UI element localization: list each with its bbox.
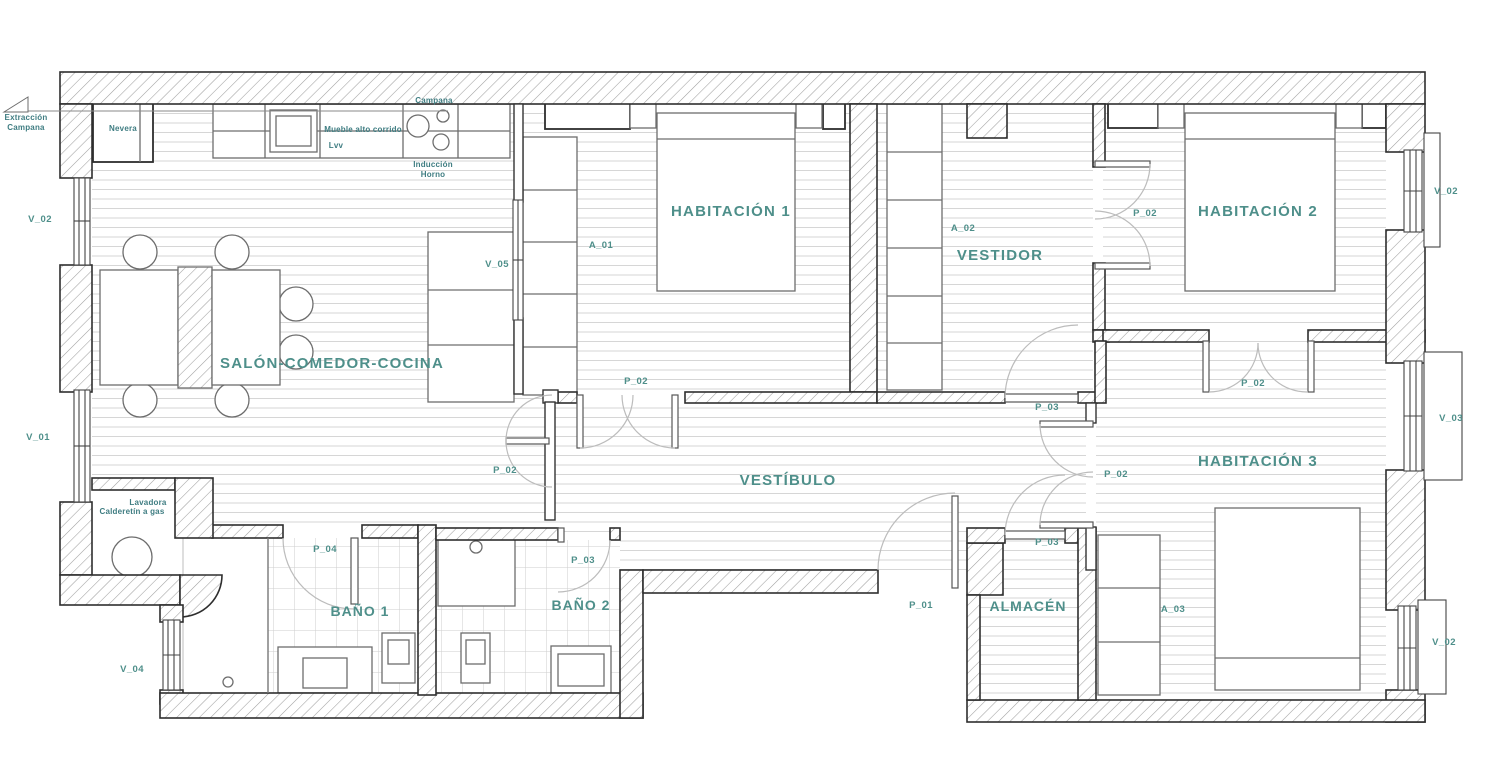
room-label-vestidor: VESTIDOR bbox=[957, 247, 1043, 264]
kitchen-label-horno: Horno bbox=[421, 170, 446, 179]
nightstand bbox=[796, 102, 822, 128]
kitchen-label-campana: Campana bbox=[415, 96, 453, 105]
vanity-sink bbox=[303, 658, 347, 688]
kitchen-label-nevera: Nevera bbox=[109, 124, 137, 133]
toilet-tank bbox=[466, 640, 485, 664]
floor-drain bbox=[223, 677, 233, 687]
room-label-hab1: HABITACIÓN 1 bbox=[671, 202, 791, 220]
kitchen-label-induccion: Inducción bbox=[413, 160, 453, 169]
room-label-hab3: HABITACIÓN 3 bbox=[1198, 452, 1318, 470]
window-v01-left bbox=[74, 390, 90, 502]
nightstand bbox=[630, 102, 656, 128]
door-label-p03-bano2: P_03 bbox=[571, 555, 595, 566]
window-v02-left bbox=[74, 178, 90, 265]
floor-plan-page: SALÓN-COMEDOR-COCINA HABITACIÓN 1 VESTID… bbox=[0, 0, 1500, 762]
chair bbox=[215, 235, 249, 269]
wall-shaft bbox=[967, 104, 1007, 138]
door-label-p02-hab1: P_02 bbox=[624, 376, 648, 387]
door-label-p03-vestidor: P_03 bbox=[1035, 402, 1059, 413]
window-label-v02-left: V_02 bbox=[28, 214, 52, 225]
kitchen-sink-basin bbox=[276, 116, 311, 146]
room-label-bano1: BAÑO 1 bbox=[331, 602, 390, 619]
nightstand bbox=[1336, 102, 1362, 128]
kitchen-label-extraccion-line2: Campana bbox=[7, 123, 45, 132]
door-label-p04: P_04 bbox=[313, 544, 337, 555]
glazed-partition-salon bbox=[545, 402, 555, 520]
bed-hab3 bbox=[1215, 508, 1360, 690]
glazed-partition-corridor bbox=[1086, 403, 1096, 423]
door-label-p02-hab3: P_02 bbox=[1104, 469, 1128, 480]
utility-label-calderetin: Calderetín a gas bbox=[99, 507, 164, 516]
door-label-p01: P_01 bbox=[909, 600, 933, 611]
extraction-arrow-icon bbox=[4, 97, 28, 112]
wardrobe-a02 bbox=[887, 104, 942, 390]
toilet-tank bbox=[388, 640, 409, 664]
wall-bottom-left bbox=[160, 693, 643, 718]
room-label-bano2: BAÑO 2 bbox=[552, 596, 611, 613]
kitchen-label-lvv: Lvv bbox=[329, 141, 344, 150]
window-v05-interior bbox=[513, 200, 523, 320]
window-label-v05: V_05 bbox=[485, 259, 509, 270]
door-label-p03-almacen: P_03 bbox=[1035, 537, 1059, 548]
wardrobe-a01 bbox=[523, 137, 577, 395]
chair bbox=[123, 383, 157, 417]
tall-cabinet bbox=[428, 232, 514, 402]
window-label-v03: V_03 bbox=[1439, 413, 1463, 424]
room-label-hab2: HABITACIÓN 2 bbox=[1198, 202, 1318, 220]
table-left bbox=[100, 270, 178, 385]
window-label-v02-right-bottom: V_02 bbox=[1432, 637, 1456, 648]
wardrobe-label-a01: A_01 bbox=[589, 240, 614, 251]
door-label-p02-salon: P_02 bbox=[493, 465, 517, 476]
window-label-v04: V_04 bbox=[120, 664, 144, 675]
room-label-vestibulo: VESTÍBULO bbox=[740, 472, 837, 489]
wardrobe-label-a03: A_03 bbox=[1161, 604, 1185, 615]
window-v04 bbox=[163, 620, 180, 690]
wall-vestibulo-bottom bbox=[643, 570, 878, 593]
shower-tray-inner bbox=[558, 654, 604, 686]
door-label-p02-vestidor: P_02 bbox=[1133, 208, 1157, 219]
wardrobe-label-a02: A_02 bbox=[951, 223, 975, 234]
window-label-v01: V_01 bbox=[26, 432, 50, 443]
nightstand bbox=[1158, 102, 1184, 128]
wardrobe-a03 bbox=[1098, 535, 1160, 695]
chair bbox=[215, 383, 249, 417]
floor-plan: SALÓN-COMEDOR-COCINA HABITACIÓN 1 VESTID… bbox=[0, 0, 1500, 762]
room-label-almacen: ALMACÉN bbox=[990, 598, 1067, 614]
utility-label-lavadora: Lavadora bbox=[129, 498, 167, 507]
kitchen-label-mueble: Mueble alto corrido bbox=[324, 125, 402, 134]
kitchen-label-extraccion-line1: Extracción bbox=[5, 113, 48, 122]
window-label-v02-right-top: V_02 bbox=[1434, 186, 1458, 197]
room-label-salon: SALÓN-COMEDOR-COCINA bbox=[220, 354, 444, 372]
wall-top bbox=[60, 72, 1425, 104]
chair bbox=[279, 287, 313, 321]
door-label-p02-hab2-hab3: P_02 bbox=[1241, 378, 1265, 389]
wall-bottom-right bbox=[967, 700, 1425, 722]
chair bbox=[123, 235, 157, 269]
table-extension bbox=[178, 267, 212, 388]
washing-machine bbox=[112, 537, 152, 577]
washbasin-tap bbox=[470, 541, 482, 553]
floor-aseo bbox=[183, 538, 268, 693]
